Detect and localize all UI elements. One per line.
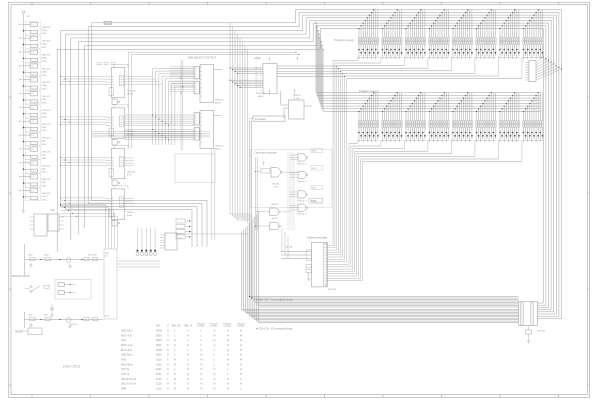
svg-text:H: H: [240, 348, 242, 352]
svg-text:(DB2): (DB2): [42, 58, 48, 60]
svg-text:74HC..: 74HC..: [312, 168, 318, 170]
svg-text:74HC574: 74HC574: [42, 165, 52, 167]
svg-text:COM0: COM0: [197, 324, 205, 328]
svg-text:X: X: [167, 367, 169, 371]
svg-text:H: H: [214, 386, 216, 390]
svg-text:B3: B3: [256, 87, 258, 89]
svg-text:(LED): (LED): [42, 199, 48, 201]
svg-text:DB0 SELECT OUTPUT: DB0 SELECT OUTPUT: [188, 55, 217, 59]
svg-text:1110: 1110: [156, 382, 162, 386]
svg-text:H: H: [174, 358, 176, 362]
svg-text:74HC574: 74HC574: [42, 82, 52, 84]
svg-text:X: X: [187, 382, 189, 386]
svg-text:H: H: [201, 358, 203, 362]
svg-text:S: S: [260, 87, 261, 89]
svg-text:H: H: [227, 353, 229, 357]
svg-text:(DB7): (DB7): [42, 127, 48, 129]
svg-text:H: H: [201, 348, 203, 352]
svg-text:(LED): (LED): [42, 172, 48, 174]
svg-text:P0: P0: [112, 77, 114, 79]
svg-text:H: H: [201, 382, 203, 386]
svg-text:(LED): (LED): [42, 75, 48, 77]
svg-text:(LED): (LED): [42, 130, 48, 132]
svg-text:74HC08: 74HC08: [272, 184, 279, 186]
svg-text:(A2): (A2): [42, 167, 46, 170]
svg-text:X: X: [167, 386, 169, 390]
svg-text:(DB3): (DB3): [42, 71, 48, 73]
svg-text:74HC10 ×2: 74HC10 ×2: [297, 213, 307, 216]
svg-text:P2: P2: [112, 122, 114, 124]
svg-text:(LED): (LED): [42, 144, 48, 146]
svg-text:Immediate: Immediate: [255, 118, 266, 121]
svg-text:P1: P1: [112, 79, 114, 81]
svg-text:H: H: [174, 372, 176, 376]
svg-text:H: H: [214, 377, 216, 381]
svg-text:74HC283: 74HC283: [256, 93, 266, 95]
svg-text:(LED): (LED): [42, 103, 48, 105]
svg-text:(LED): (LED): [42, 116, 48, 118]
svg-text:D1: D1: [195, 85, 197, 87]
svg-text:◄ C0~C9 : Command data: ◄ C0~C9 : Command data: [255, 327, 293, 331]
svg-text:(5V): (5V): [27, 16, 31, 18]
svg-text:P3: P3: [112, 85, 114, 87]
svg-text:74HC574: 74HC574: [42, 179, 52, 181]
svg-text:H: H: [227, 358, 229, 362]
svg-text:(4in): (4in): [274, 186, 278, 188]
svg-text:X: X: [167, 348, 169, 352]
svg-text:H: H: [240, 382, 242, 386]
svg-text:74HC..: 74HC..: [312, 188, 318, 190]
svg-text:1111: 1111: [156, 386, 162, 390]
svg-text:B1: B1: [256, 81, 258, 83]
svg-text:74HC574: 74HC574: [42, 193, 52, 195]
svg-text:0010: 0010: [156, 338, 162, 342]
svg-text:74HC32: 74HC32: [310, 201, 317, 203]
svg-text:D2: D2: [195, 118, 197, 120]
svg-text:D4: D4: [195, 91, 197, 93]
svg-text:S: S: [260, 66, 261, 68]
svg-text:(A0): (A0): [42, 140, 46, 143]
svg-text:JMP: JMP: [121, 386, 126, 390]
svg-text:D2: D2: [195, 133, 197, 135]
svg-text:Program memory: Program memory: [359, 89, 380, 93]
svg-text:H: H: [174, 386, 176, 390]
svg-text:74HC574: 74HC574: [42, 110, 52, 112]
svg-text:D5: D5: [195, 124, 197, 126]
svg-text:H: H: [240, 333, 242, 337]
svg-text:X: X: [167, 358, 169, 362]
svg-text:P2: P2: [112, 203, 114, 205]
svg-text:D3: D3: [195, 74, 197, 76]
svg-text:P3: P3: [112, 166, 114, 168]
svg-text:MANUAL CLOCK: MANUAL CLOCK: [12, 275, 31, 278]
svg-text:MOV A,Im: MOV A,Im: [121, 343, 133, 347]
svg-text:IN A: IN A: [121, 338, 126, 342]
svg-text:S: S: [260, 75, 261, 77]
svg-text:(DB5): (DB5): [42, 99, 48, 101]
svg-text:P2: P2: [112, 82, 114, 84]
svg-text:H: H: [201, 372, 203, 376]
svg-text:(Our CPU): (Our CPU): [63, 364, 80, 368]
svg-text:D4: D4: [195, 122, 197, 124]
svg-text:ADD B,Im: ADD B,Im: [121, 353, 133, 357]
svg-text:Address decoder: Address decoder: [307, 236, 327, 240]
svg-text:D1: D1: [195, 131, 197, 133]
svg-text:74HC74: 74HC74: [127, 212, 135, 214]
svg-text:H: H: [227, 329, 229, 333]
svg-text:D5: D5: [195, 139, 197, 141]
svg-text:H: H: [214, 333, 216, 337]
svg-text:H: H: [214, 382, 216, 386]
svg-text:H: H: [201, 353, 203, 357]
svg-text:X: X: [167, 338, 169, 342]
svg-text:Command decoder: Command decoder: [254, 151, 277, 155]
svg-text:(DB1): (DB1): [42, 44, 48, 46]
svg-text:74HC540: 74HC540: [537, 331, 545, 333]
svg-text:1011: 1011: [156, 372, 162, 376]
svg-text:(B reg): (B reg): [127, 134, 133, 136]
svg-text:P0: P0: [112, 158, 114, 160]
svg-text:10kΩ: 10kΩ: [28, 315, 33, 317]
svg-text:74HC10 ×2: 74HC10 ×2: [297, 199, 307, 202]
svg-text:330Ω: 330Ω: [44, 255, 49, 257]
svg-text:P1: P1: [112, 120, 114, 122]
svg-text:74HC14: 74HC14: [70, 324, 77, 326]
svg-text:D1: D1: [195, 70, 197, 72]
svg-text:D5: D5: [195, 93, 197, 95]
svg-text:H: H: [240, 343, 242, 347]
svg-text:H: H: [214, 338, 216, 342]
svg-text:OP: OP: [156, 324, 160, 328]
svg-text:74HC154: 74HC154: [328, 289, 338, 291]
svg-text:D2: D2: [195, 72, 197, 74]
svg-text:(LED): (LED): [42, 61, 48, 63]
svg-text:D0: D0: [195, 114, 197, 116]
svg-text:IN B: IN B: [121, 358, 126, 362]
svg-text:74HC574: 74HC574: [42, 55, 52, 57]
svg-text:H: H: [240, 358, 242, 362]
svg-text:(NOR): (NOR): [272, 218, 278, 220]
svg-text:OUT B: OUT B: [121, 367, 129, 371]
svg-text:S: S: [260, 78, 261, 80]
svg-text:P0: P0: [112, 117, 114, 119]
svg-text:H: H: [227, 338, 229, 342]
svg-text:H: H: [227, 377, 229, 381]
svg-text:0101: 0101: [156, 353, 162, 357]
svg-text:B0: B0: [256, 78, 258, 80]
svg-text:X: X: [167, 372, 169, 376]
svg-text:D5: D5: [195, 78, 197, 80]
svg-text:Program memory: Program memory: [334, 38, 355, 42]
svg-text:0000: 0000: [156, 329, 162, 333]
svg-text:D0: D0: [195, 83, 197, 85]
svg-text:H: H: [240, 372, 242, 376]
svg-text:(A3): (A3): [42, 181, 46, 184]
svg-text:COM2: COM2: [224, 324, 232, 328]
svg-text:P2: P2: [112, 163, 114, 165]
svg-text:(LED): (LED): [42, 33, 48, 35]
svg-text:(DB0): (DB0): [42, 30, 48, 32]
svg-text:H: H: [187, 362, 189, 366]
svg-text:MOV B,Im: MOV B,Im: [121, 362, 133, 366]
svg-text:74HC574: 74HC574: [42, 27, 52, 29]
svg-text:COM3: COM3: [237, 324, 245, 328]
svg-text:MOV B,A: MOV B,A: [121, 348, 132, 352]
svg-text:H: H: [167, 382, 169, 386]
svg-text:0110: 0110: [156, 358, 162, 362]
svg-text:SEL_B: SEL_B: [172, 324, 180, 328]
svg-text:Reset SW: Reset SW: [88, 253, 97, 256]
svg-text:(LED): (LED): [42, 158, 48, 160]
svg-text:0111: 0111: [156, 362, 162, 366]
svg-text:74HC574: 74HC574: [42, 96, 52, 98]
svg-text:P1: P1: [112, 160, 114, 162]
svg-text:74HC574: 74HC574: [42, 41, 52, 43]
svg-text:S: S: [260, 72, 261, 74]
svg-text:H: H: [174, 343, 176, 347]
svg-text:(MUX): (MUX): [215, 103, 221, 105]
svg-text:S: S: [260, 90, 261, 92]
svg-text:H: H: [174, 338, 176, 342]
svg-text:D4: D4: [195, 137, 197, 139]
svg-text:0011: 0011: [156, 343, 162, 347]
svg-text:A0~A3: A0~A3: [286, 246, 293, 249]
svg-text:H: H: [227, 343, 229, 347]
svg-text:H: H: [227, 362, 229, 366]
svg-text:X: X: [174, 382, 176, 386]
svg-text:H: H: [240, 353, 242, 357]
svg-text:(LED): (LED): [42, 186, 48, 188]
svg-text:P1: P1: [112, 201, 114, 203]
svg-text:P0: P0: [112, 198, 114, 200]
svg-text:◄ D0~D7 : Immediate data: ◄ D0~D7 : Immediate data: [255, 298, 293, 302]
svg-text:D4: D4: [195, 76, 197, 78]
svg-text:H: H: [201, 386, 203, 390]
svg-text:JNC(C=1) Im: JNC(C=1) Im: [121, 382, 136, 386]
svg-text:H: H: [227, 348, 229, 352]
svg-text:X: X: [167, 329, 169, 333]
svg-text:LED: LED: [44, 315, 48, 317]
svg-text:0100: 0100: [156, 348, 162, 352]
svg-text:H: H: [187, 386, 189, 390]
svg-text:X: X: [167, 333, 169, 337]
svg-text:H: H: [187, 367, 189, 371]
svg-text:(Flag): (Flag): [127, 215, 133, 217]
svg-text:H: H: [201, 367, 203, 371]
svg-text:H: H: [187, 353, 189, 357]
svg-text:10kΩ: 10kΩ: [28, 255, 33, 257]
svg-text:(A reg): (A reg): [127, 92, 133, 95]
svg-text:H: H: [187, 372, 189, 376]
svg-text:1110: 1110: [156, 377, 162, 381]
svg-text:74HC161: 74HC161: [127, 90, 136, 92]
svg-text:H: H: [214, 343, 216, 347]
svg-text:H: H: [214, 372, 216, 376]
svg-text:D2: D2: [195, 87, 197, 89]
svg-text:H: H: [227, 382, 229, 386]
svg-text:74HC74: 74HC74: [293, 95, 301, 97]
svg-text:(DB4): (DB4): [42, 85, 48, 87]
svg-text:H: H: [227, 333, 229, 337]
svg-text:(C reg): (C reg): [293, 97, 300, 100]
svg-text:74HC161: 74HC161: [127, 171, 136, 173]
svg-text:74HC02: 74HC02: [271, 204, 278, 206]
svg-text:74HC10 ×2: 74HC10 ×2: [297, 162, 307, 165]
svg-text:H: H: [187, 377, 189, 381]
svg-text:74HC..: 74HC..: [312, 151, 318, 153]
svg-text:74HC574: 74HC574: [42, 138, 52, 140]
svg-text:74HC: 74HC: [539, 57, 544, 59]
svg-text:H: H: [187, 333, 189, 337]
svg-text:74HC574: 74HC574: [42, 68, 52, 70]
svg-text:(MUX): (MUX): [215, 149, 221, 151]
svg-text:(LED): (LED): [42, 47, 48, 49]
svg-text:74HC574: 74HC574: [42, 124, 52, 126]
svg-text:S: S: [260, 69, 261, 71]
svg-text:H: H: [174, 377, 176, 381]
svg-text:SEL_A: SEL_A: [184, 324, 192, 328]
svg-text:(CLK): (CLK): [105, 316, 110, 318]
svg-text:P3: P3: [112, 125, 114, 127]
svg-text:74HC161: 74HC161: [127, 131, 136, 133]
svg-text:Adder: Adder: [254, 56, 261, 60]
svg-text:(ADD): (ADD): [258, 95, 264, 98]
svg-text:X'tal: X'tal: [50, 209, 55, 212]
svg-text:S: S: [260, 81, 261, 83]
svg-text:H: H: [240, 329, 242, 333]
svg-text:X: X: [167, 353, 169, 357]
svg-text:H: H: [214, 329, 216, 333]
svg-text:74HC574: 74HC574: [42, 151, 52, 153]
svg-text:(DB6): (DB6): [42, 113, 48, 115]
svg-text:X: X: [167, 343, 169, 347]
svg-text:(A1): (A1): [42, 153, 46, 156]
svg-text:1001: 1001: [156, 367, 162, 371]
svg-text:0001: 0001: [156, 333, 162, 337]
svg-text:COM1: COM1: [210, 324, 218, 328]
svg-text:D1: D1: [195, 116, 197, 118]
svg-text:H: H: [240, 367, 242, 371]
svg-text:ADD A,Im: ADD A,Im: [121, 329, 132, 333]
svg-text:245: 245: [105, 256, 108, 258]
svg-text:H: H: [201, 377, 203, 381]
svg-text:H: H: [240, 362, 242, 366]
svg-text:74HC10 ×2: 74HC10 ×2: [297, 180, 307, 183]
svg-text:(PC): (PC): [127, 174, 131, 176]
svg-text:74HC151: 74HC151: [215, 100, 225, 102]
svg-text:X: X: [167, 362, 169, 366]
svg-text:OUT Im: OUT Im: [121, 372, 130, 376]
svg-text:H: H: [187, 343, 189, 347]
svg-text:B2: B2: [256, 84, 258, 86]
svg-text:D3: D3: [195, 120, 197, 122]
svg-text:H: H: [201, 362, 203, 366]
svg-text:H: H: [227, 386, 229, 390]
svg-text:JNC(C=0) Im: JNC(C=0) Im: [121, 377, 136, 381]
svg-text:S: S: [260, 84, 261, 86]
svg-text:MOV A,B: MOV A,B: [121, 333, 132, 337]
svg-text:74HC151: 74HC151: [215, 146, 225, 148]
svg-text:D0: D0: [195, 68, 197, 70]
svg-text:RESET: RESET: [15, 332, 23, 334]
svg-text:H: H: [240, 338, 242, 342]
svg-text:D3: D3: [195, 89, 197, 91]
svg-text:(LED): (LED): [42, 89, 48, 91]
svg-text:H: H: [174, 362, 176, 366]
svg-text:C: C: [167, 324, 169, 328]
svg-text:D0: D0: [195, 129, 197, 131]
svg-text:H: H: [214, 367, 216, 371]
svg-text:(OUT): (OUT): [42, 196, 48, 198]
svg-text:P3: P3: [112, 206, 114, 208]
